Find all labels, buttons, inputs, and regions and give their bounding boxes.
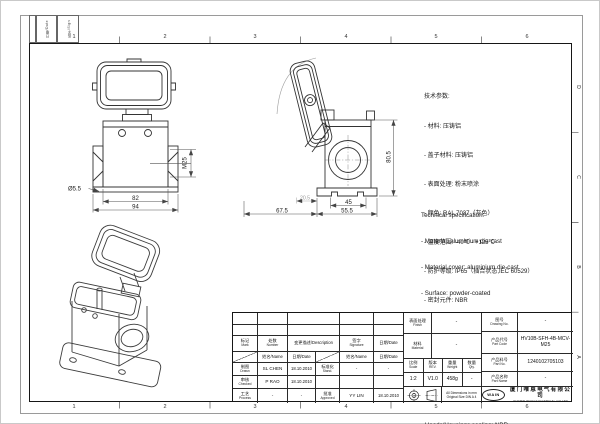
tb-empty-cell — [373, 375, 403, 388]
tb-revision-empty-cell — [233, 313, 257, 324]
tb-diagonal-cell — [233, 351, 257, 362]
tb-approved-name: YY LIN — [339, 388, 373, 403]
tb-approved-label: 批准Approved — [315, 388, 339, 403]
tb-revision-empty-cell — [339, 324, 373, 335]
tb-stand-label: 标准化Stand. — [315, 362, 339, 375]
tb-drawing-no-value: - — [517, 313, 573, 331]
tb-material-label: 材料Material — [403, 333, 431, 358]
tb-part-code-label: 产品代号Part Code — [481, 331, 517, 353]
tb-part-no-value: 1240102705103 — [517, 353, 573, 371]
dim-width-outer-label: 94 — [132, 205, 139, 211]
tb-part-name-label: 产品名称Part Name — [481, 371, 517, 386]
tb-drawn-date: 18.10.2010 — [287, 362, 315, 375]
tb-revision-empty-cell — [373, 313, 403, 324]
tb-description-header: 变更描述/Description — [287, 335, 339, 351]
dim-height-label: 80.5 — [387, 151, 393, 163]
tb-qty-label: 数量Qty. — [462, 358, 482, 372]
side-view — [277, 58, 377, 196]
tb-signature-header: 签字Signature — [339, 335, 373, 351]
tb-rev-value: V1.0 — [423, 372, 443, 386]
tb-scale-label: 比例Scale — [403, 358, 423, 372]
tb-approved-date: 18.10.2010 — [373, 388, 403, 403]
tb-projection-cell — [403, 386, 441, 403]
dim-width-inner-label: 82 — [132, 196, 139, 202]
tb-revision-empty-cell — [373, 324, 403, 335]
dim-hole-label: Ø5.5 — [68, 187, 82, 193]
front-view — [93, 59, 179, 192]
tb-date-subheader: 日期/Date — [373, 351, 403, 362]
tb-company-cell: WAIN 厦门唯恩电气有限公司 XIAMEN WAIN ELECTRICAL C… — [481, 386, 573, 403]
tb-revision-empty-cell — [287, 313, 339, 324]
company-name: 厦门唯恩电气有限公司 XIAMEN WAIN ELECTRICAL CO.LTD — [508, 387, 573, 403]
drawing-sheet: 日期/Date 签字/Sign 1 2 3 4 5 6 1 2 3 4 5 6 … — [0, 0, 600, 424]
tb-empty-cell — [315, 375, 339, 388]
tb-revision-empty-cell — [233, 324, 257, 335]
tb-part-name-value: - — [517, 371, 573, 386]
tb-drawing-no-label: 图号Drawing No. — [481, 313, 517, 331]
tb-part-code-value: HV10B-SFH-4B-MCV-M25 — [517, 331, 573, 353]
tb-number-header: 处数Number — [257, 335, 287, 351]
dim-open-label: 67.5 — [276, 208, 288, 214]
tb-name-header: 姓名/Name — [339, 351, 373, 362]
tb-drawn-label: 制图Drawn — [233, 362, 257, 375]
tb-process-name: - — [257, 388, 287, 403]
tb-empty-cell — [339, 375, 373, 388]
tb-finish-label: 表面处理Finish — [403, 313, 431, 333]
dim-feet-label: 45 — [345, 200, 352, 206]
tb-stand-name: - — [339, 362, 373, 375]
tb-revision-empty-cell — [287, 324, 339, 335]
tb-checked-name: P RAO — [257, 375, 287, 388]
dim-base-label: 55.5 — [341, 208, 353, 214]
tb-name-header: 姓名/Name — [257, 351, 287, 362]
tb-qty-value: - — [462, 372, 482, 386]
dim-offset-label: 20.5 — [300, 196, 310, 202]
title-block: 标记Mark 处数Number 变更描述/Description 签字Signa… — [232, 312, 572, 402]
tb-revision-empty-cell — [257, 324, 287, 335]
tb-weight-value: 458g — [442, 372, 462, 386]
tb-weight-label: 重量Weight — [442, 358, 462, 372]
tb-rev-label: 版本REV. — [423, 358, 443, 372]
tb-finish-value: - — [431, 313, 481, 333]
isometric-view — [59, 222, 163, 388]
tb-diagonal-cell — [315, 351, 339, 362]
tb-process-label: 工艺Process — [233, 388, 257, 403]
tb-revision-empty-cell — [257, 313, 287, 324]
tb-date-header: 日期/Date — [373, 335, 403, 351]
tb-checked-label: 审核Checked — [233, 375, 257, 388]
tb-part-no-label: 产品料号Part No. — [481, 353, 517, 371]
tb-material-value: - — [431, 333, 481, 358]
wain-logo: WAIN — [482, 389, 505, 401]
tb-date-subheader: 日期/Date — [287, 351, 315, 362]
tb-dims-note: All Dimensions in mm Original Size DIN A… — [441, 386, 481, 403]
tb-process-date: - — [287, 388, 315, 403]
tb-checked-date: 18.10.2010 — [287, 375, 315, 388]
front-view-dimensions — [89, 150, 197, 213]
dim-thread-label: M25 — [183, 157, 189, 169]
tb-drawn-name: SL CHEN — [257, 362, 287, 375]
tb-stand-date: - — [373, 362, 403, 375]
side-view-dimensions — [244, 120, 398, 217]
tb-revision-empty-cell — [339, 313, 373, 324]
tb-scale-value: 1:2 — [403, 372, 423, 386]
tb-mark-header: 标记Mark — [233, 335, 257, 351]
projection-symbol-icon — [405, 388, 441, 403]
